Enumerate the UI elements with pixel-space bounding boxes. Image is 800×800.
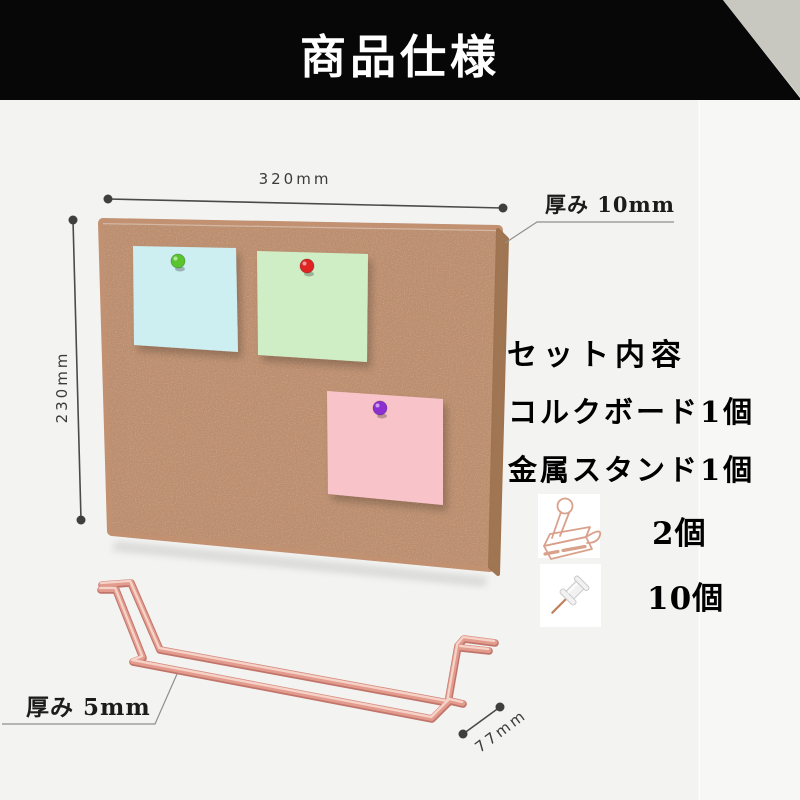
push-pin-icon (540, 564, 601, 627)
dimension-320mm (104, 195, 508, 213)
dimension-230mm (69, 216, 86, 525)
product-spec-image: 商品仕様 320mm 230mm 厚み 10mm 厚み 5mm 77mm セット… (0, 0, 800, 800)
set-item-stand: 金属スタンド1個 (508, 447, 755, 489)
note-cyan (133, 246, 238, 352)
board-width-label: 320mm (259, 170, 332, 188)
board-thickness-label: 厚み 10mm (545, 189, 675, 219)
header-band (0, 0, 800, 100)
board-height-label: 230mm (53, 351, 71, 424)
clip-quantity-label: 2個 (652, 508, 707, 553)
binder-clip-icon (538, 494, 600, 559)
leader-thickness-10mm (505, 222, 674, 243)
metal-stand (100, 581, 495, 719)
pin-quantity-label: 10個 (647, 573, 724, 618)
set-contents-title: セット内容 (507, 330, 687, 374)
stand-thickness-label: 厚み 5mm (26, 688, 151, 722)
set-item-corkboard: コルクボード1個 (508, 389, 755, 431)
